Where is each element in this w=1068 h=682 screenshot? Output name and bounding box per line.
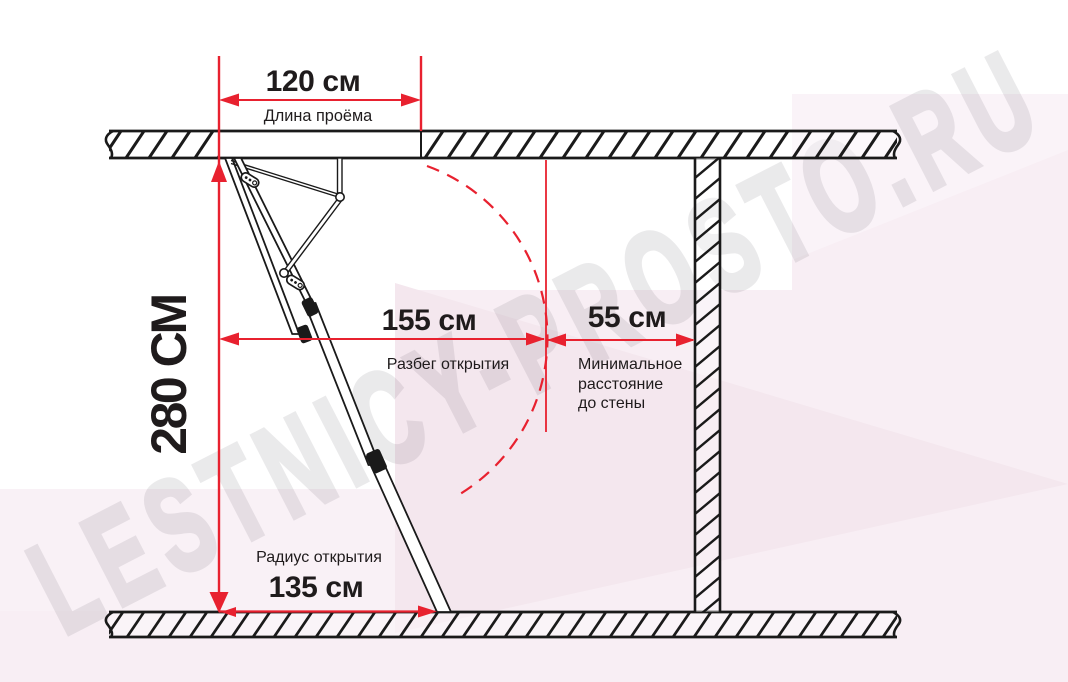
svg-text:Разбег открытия: Разбег открытия (387, 356, 509, 373)
svg-text:Минимальное: Минимальное (578, 356, 682, 373)
svg-text:расстояние: расстояние (578, 376, 663, 393)
svg-text:Радиус открытия: Радиус открытия (256, 549, 382, 566)
svg-text:Длина проёма: Длина проёма (264, 107, 373, 125)
svg-text:120 см: 120 см (266, 65, 361, 98)
svg-text:55 см: 55 см (588, 301, 667, 334)
svg-text:135 см: 135 см (269, 571, 364, 604)
svg-text:до стены: до стены (578, 395, 645, 412)
svg-text:155 см: 155 см (382, 304, 477, 337)
svg-text:280 СМ: 280 СМ (141, 295, 197, 454)
